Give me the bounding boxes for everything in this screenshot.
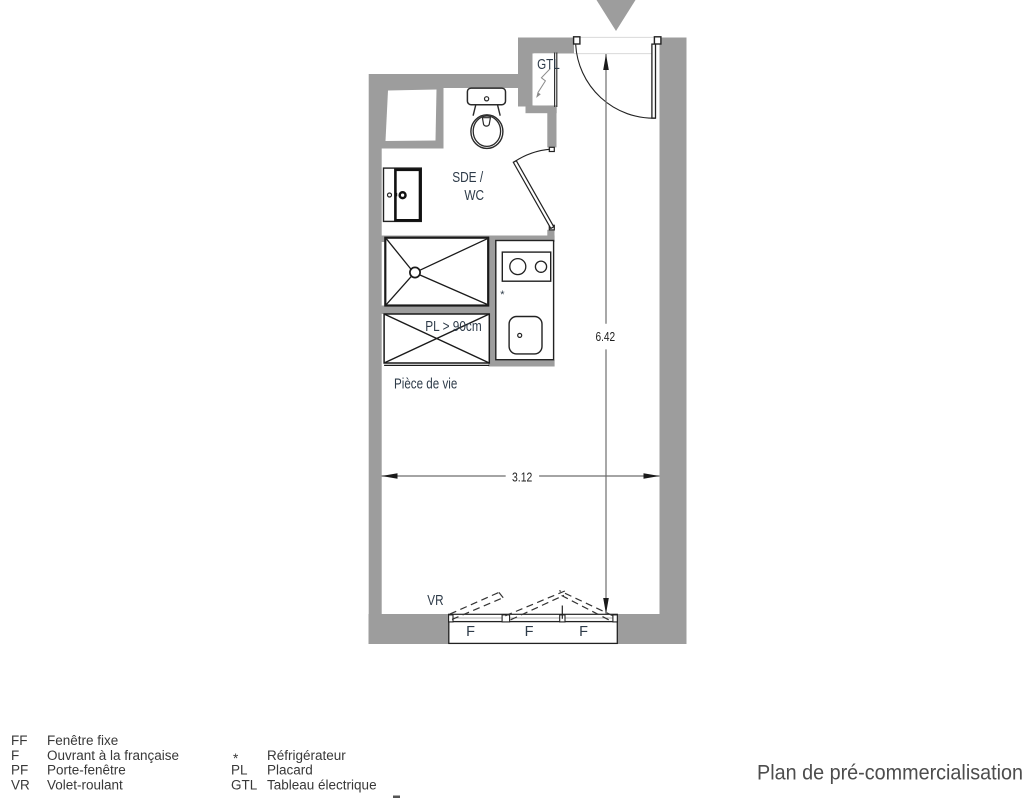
svg-text:Tableau électrique: Tableau électrique [267, 778, 377, 793]
svg-text:F: F [11, 748, 19, 763]
svg-text:3.12: 3.12 [512, 471, 532, 485]
svg-text:VR: VR [11, 778, 30, 793]
svg-text:FF: FF [11, 733, 28, 748]
svg-text:F: F [579, 624, 588, 640]
svg-text:PL > 90cm: PL > 90cm [425, 319, 481, 335]
svg-text:Volet-roulant: Volet-roulant [47, 778, 123, 793]
svg-text:*: * [500, 289, 505, 301]
svg-text:Fenêtre fixe: Fenêtre fixe [47, 733, 118, 748]
svg-text:Ouvrant à la française: Ouvrant à la française [47, 748, 179, 763]
svg-text:Pièce de vie: Pièce de vie [394, 376, 457, 392]
svg-text:F: F [466, 624, 475, 640]
svg-text:PF: PF [11, 763, 28, 778]
svg-text:VR: VR [427, 593, 443, 609]
svg-text:GTL: GTL [537, 57, 560, 73]
svg-text:WC: WC [464, 188, 484, 204]
svg-text:GTL: GTL [231, 778, 258, 793]
svg-text:PL: PL [231, 763, 248, 778]
svg-text:Placard: Placard [267, 763, 313, 778]
svg-text:Porte-fenêtre: Porte-fenêtre [47, 763, 126, 778]
svg-text:SDE /: SDE / [452, 170, 484, 186]
svg-text:Plan de pré-commercialisation: Plan de pré-commercialisation [757, 762, 1023, 785]
svg-text:F: F [525, 624, 534, 640]
svg-text:6.42: 6.42 [596, 330, 616, 344]
svg-text:Réfrigérateur: Réfrigérateur [267, 748, 346, 763]
